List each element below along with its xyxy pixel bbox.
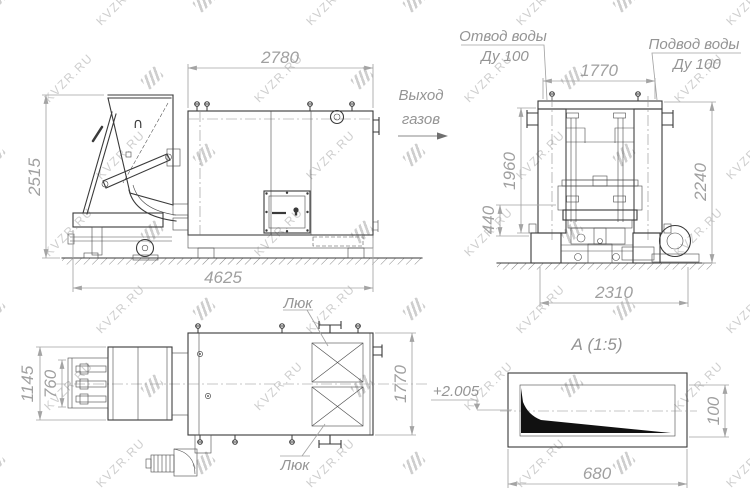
callout-label: Люк	[280, 457, 311, 474]
valve-icon	[197, 435, 202, 444]
callout-line1: Отвод воды	[459, 28, 547, 45]
dim-label: 440	[479, 205, 498, 234]
hatch-callout-top: Люк	[283, 295, 328, 346]
fuel-hopper: ∩	[108, 95, 180, 205]
detail-view-a: А (1:5) +2.005 680 100	[431, 335, 729, 488]
water-inlet-flange	[662, 111, 673, 128]
dim-front-width-bottom: 2310	[540, 267, 688, 307]
safety-valve-icon	[194, 102, 199, 111]
callout-label: Люк	[283, 295, 314, 312]
dim-label: 4625	[204, 268, 242, 287]
technical-drawing: ∩	[0, 0, 750, 500]
hatch-opening-top	[312, 343, 363, 382]
dim-label: 2780	[260, 48, 299, 67]
bolt-icon	[205, 393, 210, 398]
water-outlet-flange	[527, 111, 538, 128]
dim-label: 680	[583, 464, 612, 483]
safety-valve-icon	[635, 92, 640, 101]
dim-body-width: 2780	[188, 48, 373, 108]
elevation-mark: +2.005	[431, 383, 512, 410]
dim-label: 1145	[18, 365, 37, 402]
pipe-tee-bottom	[319, 435, 341, 448]
dim-label: 1770	[580, 61, 618, 80]
valve-icon	[355, 324, 360, 333]
flue-stub	[373, 118, 379, 135]
drawing-canvas: KVZR.RUKVZR.RUKVZR.RUKVZR.RUKVZR.RUKVZR.…	[0, 0, 750, 500]
dim-column-height: 1960	[500, 108, 536, 233]
grate-drive	[571, 228, 625, 244]
grate-frame	[563, 210, 637, 220]
dim-label: 2515	[25, 158, 44, 197]
hatch-callout-bottom: Люк	[280, 424, 325, 474]
dim-label: 100	[704, 396, 723, 425]
bolt-icon	[197, 351, 202, 356]
dim-base-height: 440	[479, 205, 556, 236]
flow-arrow-icon	[437, 132, 448, 139]
safety-valve-icon	[204, 102, 209, 111]
callout-line2: Ду 100	[479, 48, 529, 65]
gas-exit-line1: Выход	[398, 87, 443, 104]
dim-feeder-inner: 760	[41, 360, 66, 407]
top-flange	[331, 111, 344, 124]
valve-icon	[289, 435, 294, 444]
callout-line2: Ду 100	[671, 56, 721, 73]
valve-icon	[232, 435, 237, 444]
dim-detail-width: 680	[508, 449, 687, 488]
support-frame	[68, 204, 188, 260]
water-inlet-callout: Подвод воды Ду 100	[649, 36, 741, 100]
elevation-arrow-icon	[474, 404, 480, 410]
plan-view: Люк Люк 1145 760 1770	[18, 295, 430, 476]
dim-label: 2240	[691, 163, 710, 202]
gas-exit-line2: газов	[402, 111, 440, 128]
dim-label: 760	[41, 369, 60, 398]
hopper-mark: ∩	[133, 116, 143, 132]
dim-label: 1960	[500, 152, 519, 190]
detail-title: А (1:5)	[570, 335, 622, 354]
gas-exit-annotation: Выход газов	[398, 87, 448, 140]
boiler-body	[188, 111, 373, 235]
side-stub	[373, 345, 382, 357]
elevation-label: +2.005	[433, 383, 480, 400]
water-outlet-callout: Отвод воды Ду 100	[459, 28, 547, 100]
dim-label: 1770	[391, 365, 410, 403]
foundation-left	[531, 233, 561, 263]
valve-icon	[195, 324, 200, 333]
weld-wedge-profile	[521, 388, 671, 433]
front-view: Отвод воды Ду 100 Подвод воды Ду 100 Вых…	[398, 28, 741, 307]
dim-label: 2310	[594, 283, 633, 302]
valve-icon	[279, 324, 284, 333]
hatch-opening-bottom	[312, 387, 363, 426]
pipe-tee-top	[319, 322, 341, 334]
drain-stub	[373, 220, 378, 232]
tipping-mechanism	[83, 112, 176, 221]
feeder-plan	[68, 347, 188, 420]
side-view: ∩	[25, 48, 422, 292]
safety-valve-icon	[349, 102, 354, 111]
foundation-right	[633, 233, 660, 263]
callout-line1: Подвод воды	[649, 36, 740, 53]
safety-valve-icon	[307, 102, 312, 111]
